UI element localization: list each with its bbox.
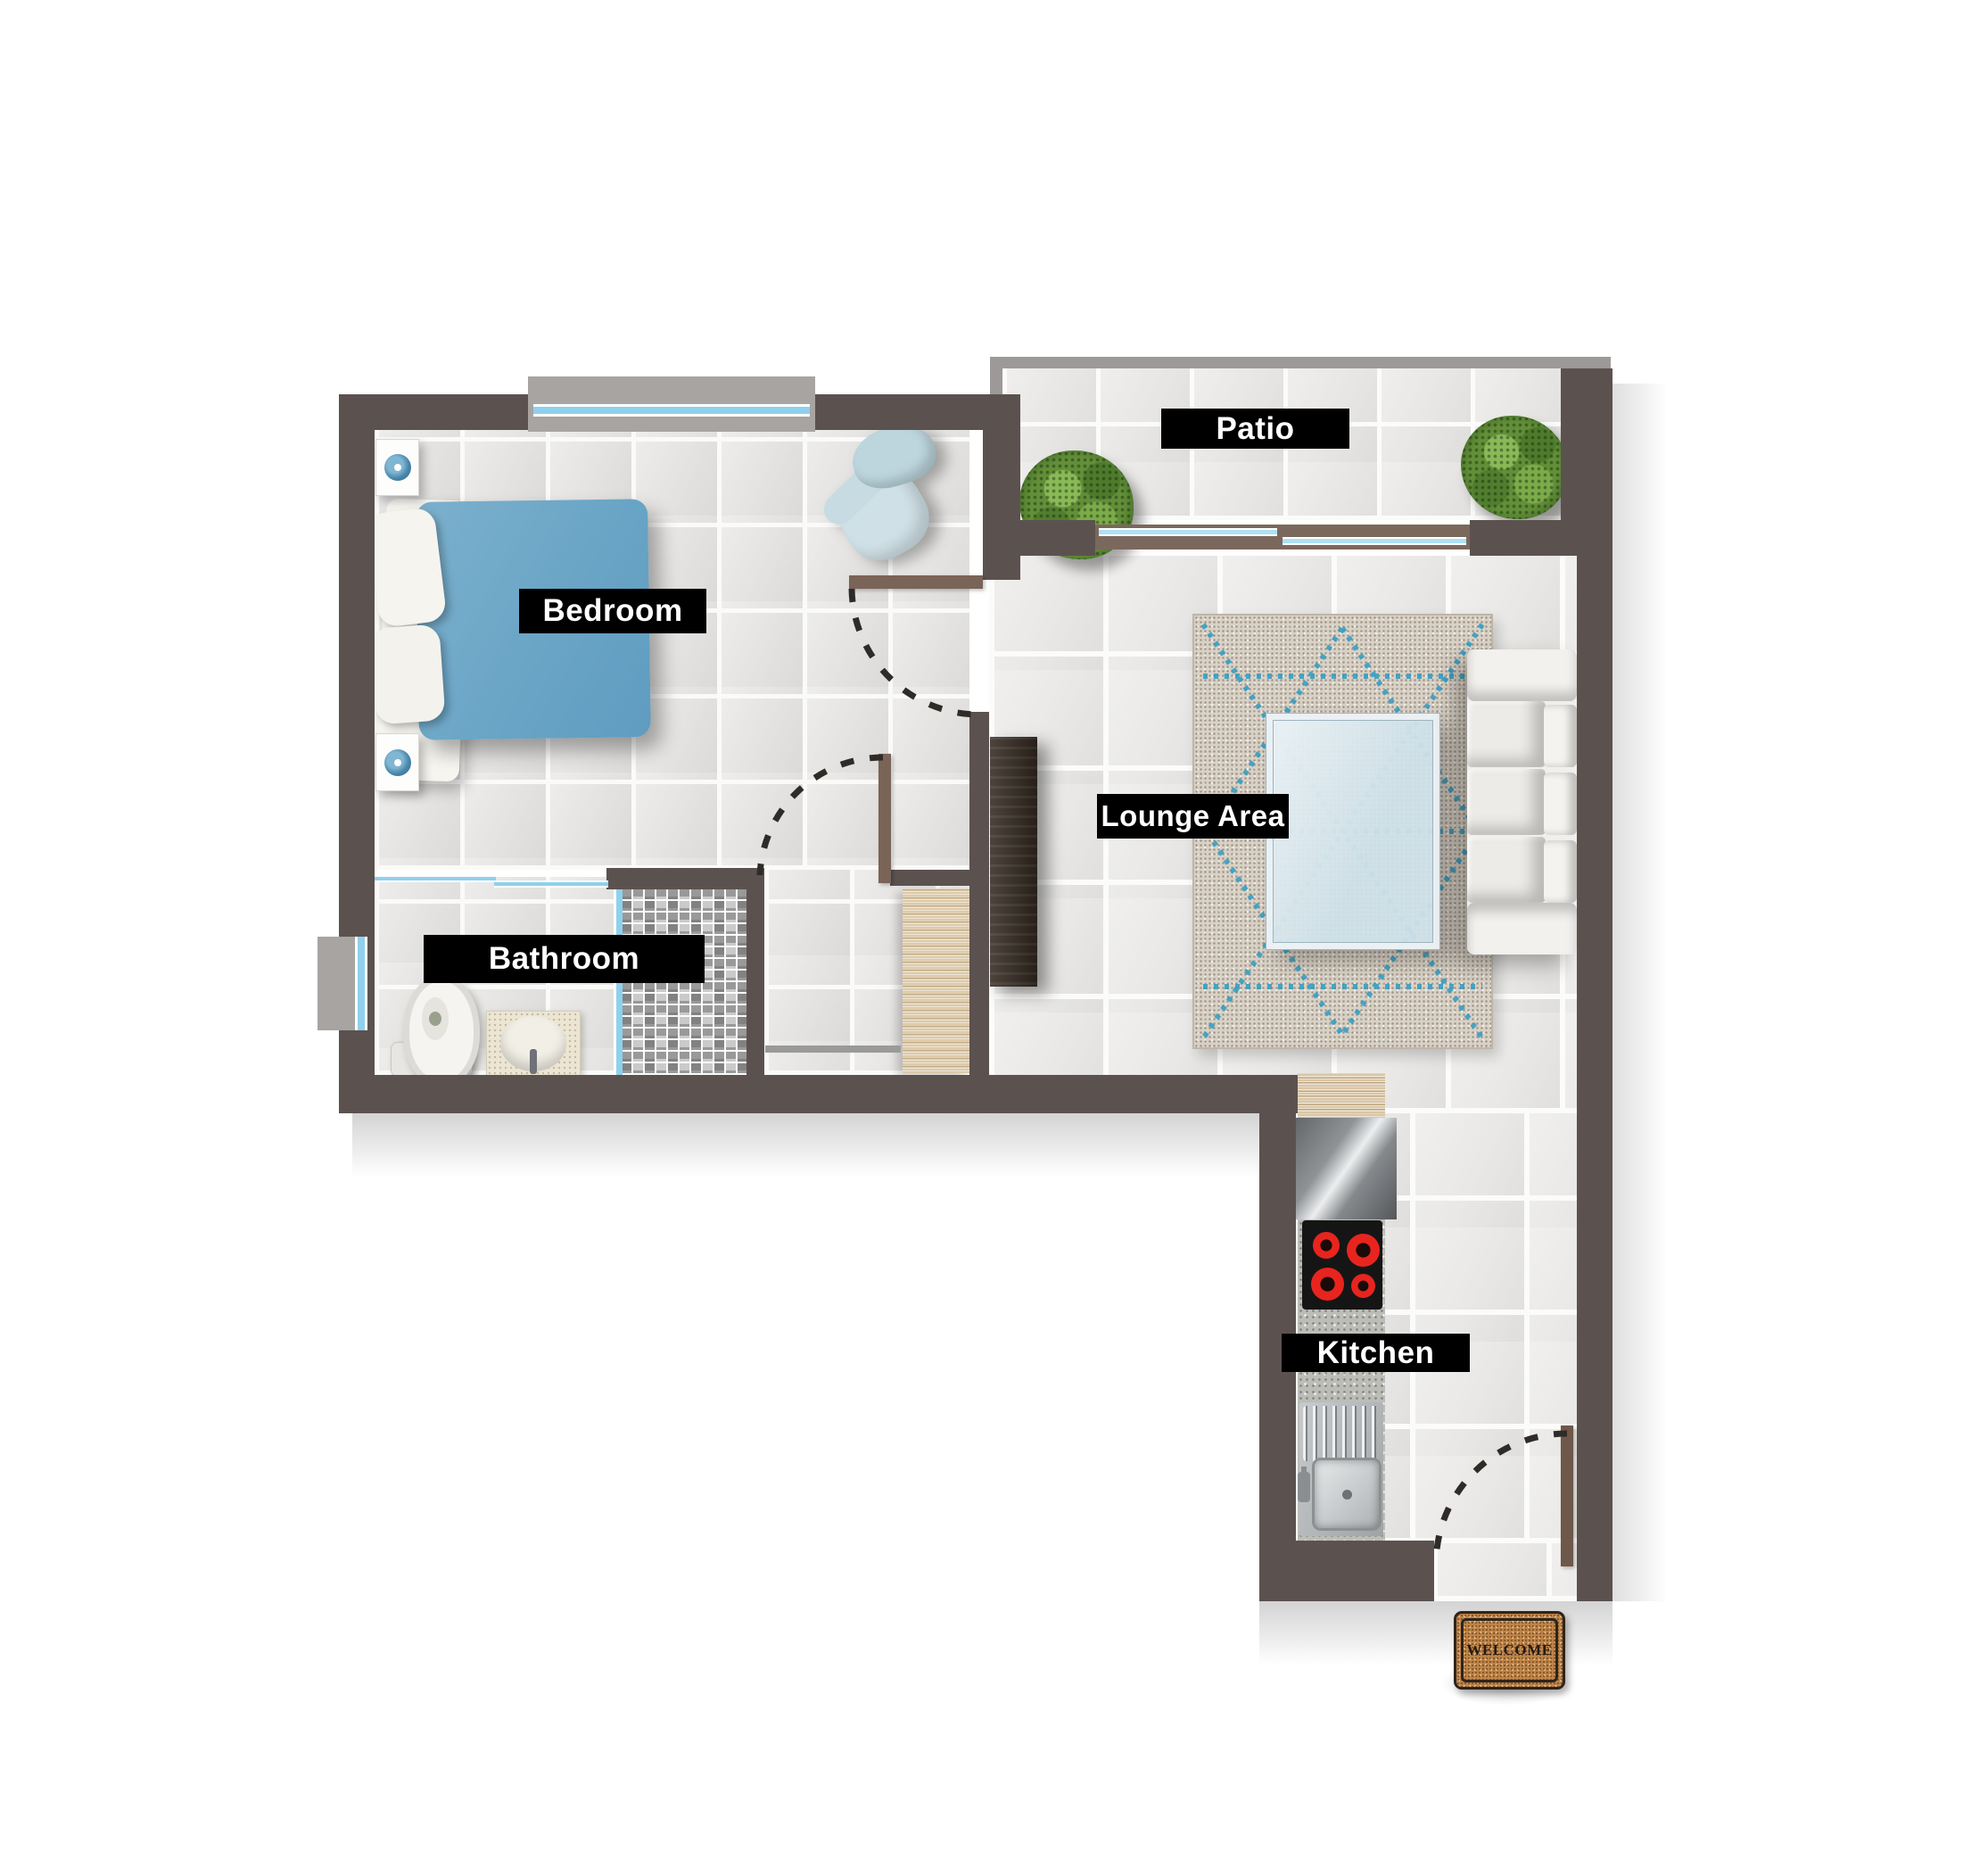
entry-threshold-floor <box>1432 1543 1577 1601</box>
welcome-mat: WELCOME <box>1454 1611 1565 1690</box>
building-shadow-bottom-left <box>352 1113 1298 1178</box>
sink-basin <box>1312 1458 1382 1531</box>
hob <box>1302 1220 1382 1310</box>
bedroom-window-glass <box>533 404 810 417</box>
toilet-bowl <box>403 975 480 1086</box>
sofa-seat-cushion <box>1467 701 1546 767</box>
sofa-back-cushion <box>1544 773 1577 835</box>
pillow <box>369 624 445 724</box>
sofa-armrest-top <box>1467 649 1577 701</box>
hob-burner <box>1347 1234 1380 1267</box>
faucet-icon <box>1298 1472 1310 1502</box>
sliding-patio-door <box>1095 525 1470 550</box>
bathroom-window <box>318 937 355 1030</box>
wall-patio-right <box>1561 368 1612 520</box>
sofa-back-cushion <box>1544 840 1577 903</box>
bathroom-label: Bathroom <box>424 935 705 983</box>
pillow <box>366 507 447 628</box>
wall-patio-left <box>983 430 1020 580</box>
entry-door-leaf <box>1561 1426 1573 1566</box>
bathroom-door-leaf <box>878 754 891 883</box>
bedroom-window <box>528 376 815 432</box>
wall-bathroom-door <box>890 870 969 886</box>
sofa-seat-cushion <box>1467 769 1546 835</box>
toilet-drain <box>429 1012 441 1026</box>
bedroom-door-leaf <box>849 575 983 589</box>
kitchen-worktop-wood <box>1298 1073 1385 1120</box>
building-shadow-right <box>1612 384 1668 1601</box>
sofa-back-cushion <box>1544 705 1577 767</box>
bathroom-window-glass <box>355 937 367 1030</box>
bedroom-label: Bedroom <box>519 589 706 633</box>
coffee-table <box>1266 714 1439 949</box>
welcome-mat-text: WELCOME <box>1466 1641 1552 1659</box>
patio-label: Patio <box>1161 409 1349 449</box>
kitchen-label: Kitchen <box>1282 1334 1470 1372</box>
threshold-step-line <box>765 1045 901 1053</box>
sink-drainer <box>1303 1406 1380 1461</box>
nightstand <box>375 439 419 496</box>
sink-drain <box>1342 1490 1352 1500</box>
wall-right <box>1577 520 1612 1601</box>
media-cabinet <box>990 737 1037 987</box>
hob-burner <box>1311 1268 1344 1301</box>
patio-parapet-left <box>990 357 1002 398</box>
wall-kitchen-bottom <box>1259 1541 1434 1601</box>
sofa-seat-cushion <box>1467 837 1546 903</box>
sofa-armrest-bottom <box>1467 903 1577 955</box>
kitchen-sink <box>1299 1402 1383 1536</box>
hob-burner <box>1351 1274 1375 1298</box>
table-lamp-icon <box>384 454 411 481</box>
hob-burner <box>1313 1232 1340 1259</box>
bedroom-bathroom-partition <box>494 880 608 888</box>
wall-shower-right <box>746 889 764 1075</box>
faucet-icon <box>530 1049 537 1074</box>
washbasin-vanity <box>486 1011 581 1077</box>
wall-slider-left <box>1020 520 1095 556</box>
nightstand <box>375 733 419 791</box>
lounge-label: Lounge Area <box>1097 794 1289 839</box>
floor-plan: WELCOME Bedroom Bathroom Lounge Area Pat… <box>0 0 1963 1876</box>
patio-parapet-top <box>990 357 1611 368</box>
bedroom-bathroom-partition <box>375 875 496 882</box>
wall-hall <box>969 712 989 1075</box>
wardrobe <box>903 888 969 1073</box>
fridge-stainless-top <box>1296 1118 1397 1219</box>
sliding-door-glass <box>1099 528 1277 536</box>
table-lamp-icon <box>384 749 411 776</box>
welcome-mat-inner-border: WELCOME <box>1461 1618 1558 1682</box>
sofa <box>1467 649 1577 955</box>
wall-bottom-left <box>339 1075 1298 1113</box>
wall-shower-top <box>606 868 764 889</box>
sliding-door-glass <box>1283 537 1466 545</box>
toilet-bowl-inner <box>422 997 449 1040</box>
